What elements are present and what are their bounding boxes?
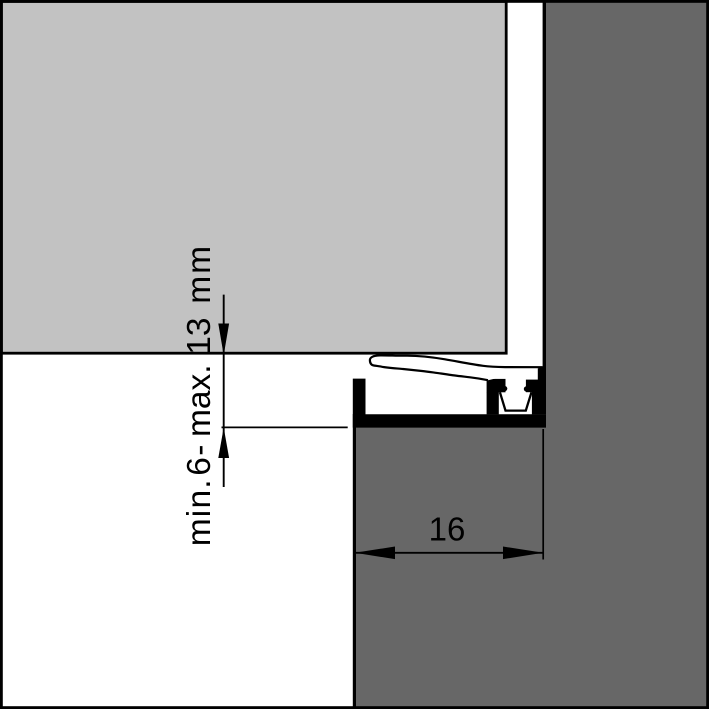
svg-text:mm: mm xyxy=(181,244,218,304)
svg-text:-: - xyxy=(181,445,218,456)
svg-text:min.: min. xyxy=(181,478,218,546)
svg-text:16: 16 xyxy=(429,511,466,548)
svg-text:13: 13 xyxy=(181,317,218,354)
svg-text:max.: max. xyxy=(181,364,218,437)
svg-text:6: 6 xyxy=(181,457,218,476)
